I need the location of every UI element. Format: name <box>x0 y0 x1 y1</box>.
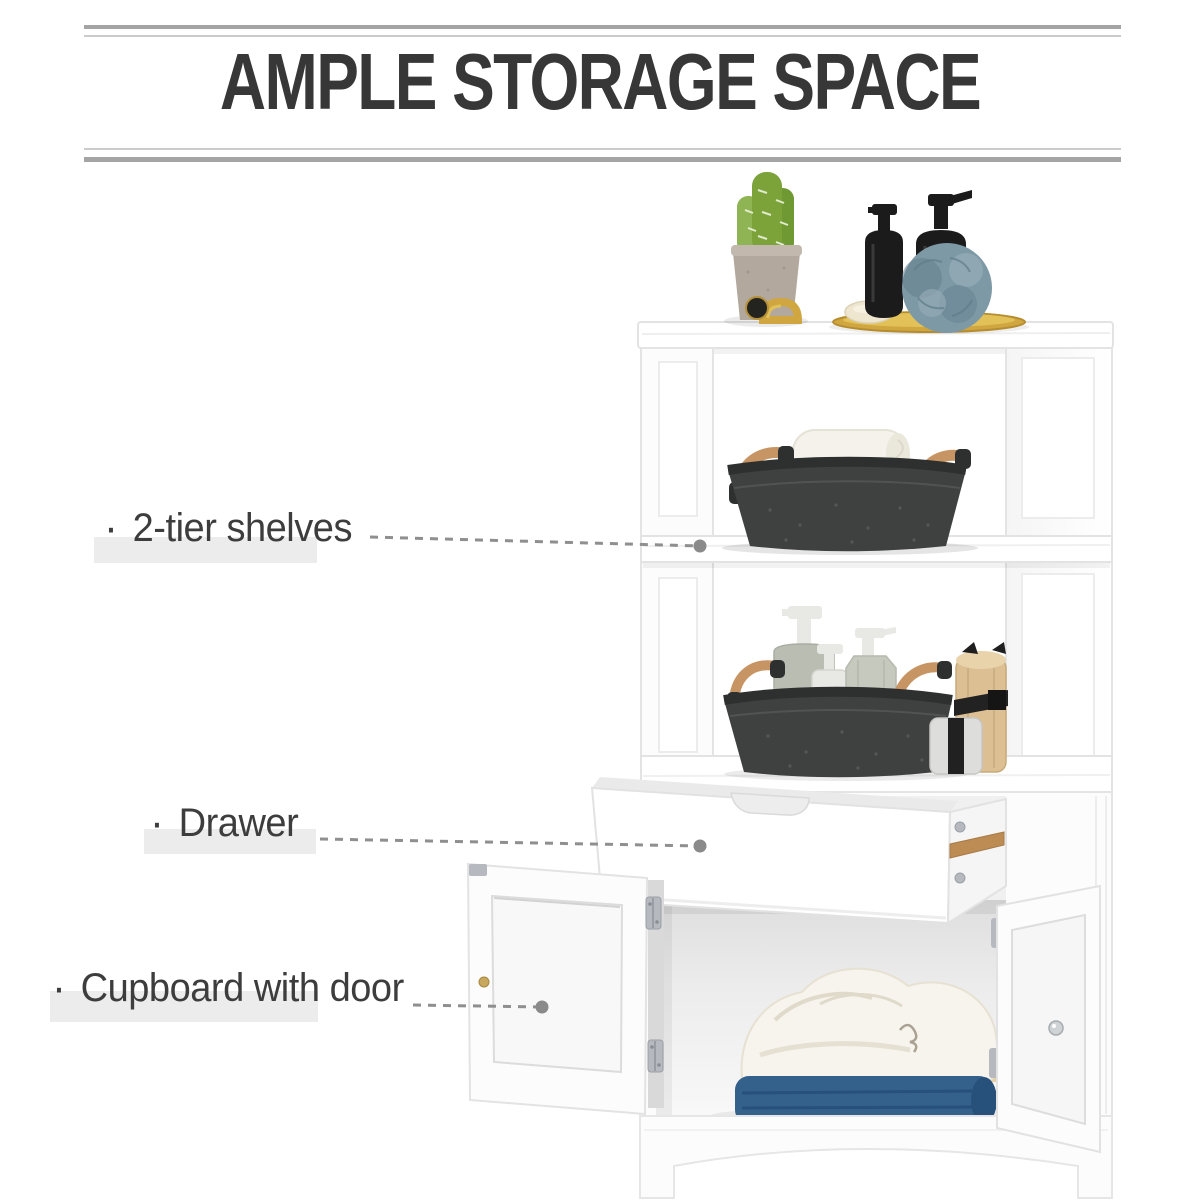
basket-body <box>724 693 952 777</box>
watch-face <box>746 297 768 319</box>
felt-basket-with-towel <box>722 430 978 555</box>
left-cupboard-door <box>468 864 664 1114</box>
leader-dot-cupboard <box>536 1001 549 1014</box>
left-door-knob <box>479 977 489 987</box>
leader-line-cupboard <box>413 1005 542 1007</box>
door-recessed-panel <box>492 896 622 1072</box>
callout-shelves: · 2-tier shelves <box>104 506 352 550</box>
top-decor <box>724 172 1029 334</box>
cactus-plant <box>737 172 794 254</box>
drawer-screw <box>955 873 965 883</box>
drawer-screw <box>955 822 965 832</box>
silver-roll <box>930 718 982 774</box>
left-window-upper <box>659 362 697 516</box>
right-door-knob <box>1049 1021 1063 1035</box>
door-catch-plate <box>469 864 487 876</box>
door-hinge <box>646 897 661 929</box>
blue-loofah <box>902 243 992 333</box>
callout-shelves-label: 2-tier shelves <box>133 506 352 550</box>
callout-cupboard-label: Cupboard with door <box>81 966 404 1010</box>
bullet-dot: · <box>104 506 117 550</box>
left-window-lower <box>659 578 697 752</box>
right-window-lower <box>1022 574 1094 756</box>
right-window-upper <box>1022 358 1094 518</box>
storage-cabinet <box>468 172 1113 1198</box>
leader-dot-shelves <box>694 540 707 553</box>
callout-drawer: · Drawer <box>150 801 298 845</box>
bullet-dot: · <box>52 966 65 1010</box>
callout-drawer-label: Drawer <box>179 801 299 845</box>
felt-basket-with-toiletries <box>724 606 1008 781</box>
black-strap <box>948 718 964 774</box>
right-cupboard-door <box>989 886 1100 1152</box>
basket-body <box>728 464 966 551</box>
bullet-dot: · <box>150 801 163 845</box>
callout-cupboard: · Cupboard with door <box>52 966 404 1010</box>
black-pump-bottle-small <box>865 204 903 318</box>
door-hinge <box>648 1040 663 1072</box>
gold-bracelet <box>746 297 798 320</box>
door-recessed-panel <box>1012 915 1085 1124</box>
leader-dot-drawer <box>694 840 707 853</box>
